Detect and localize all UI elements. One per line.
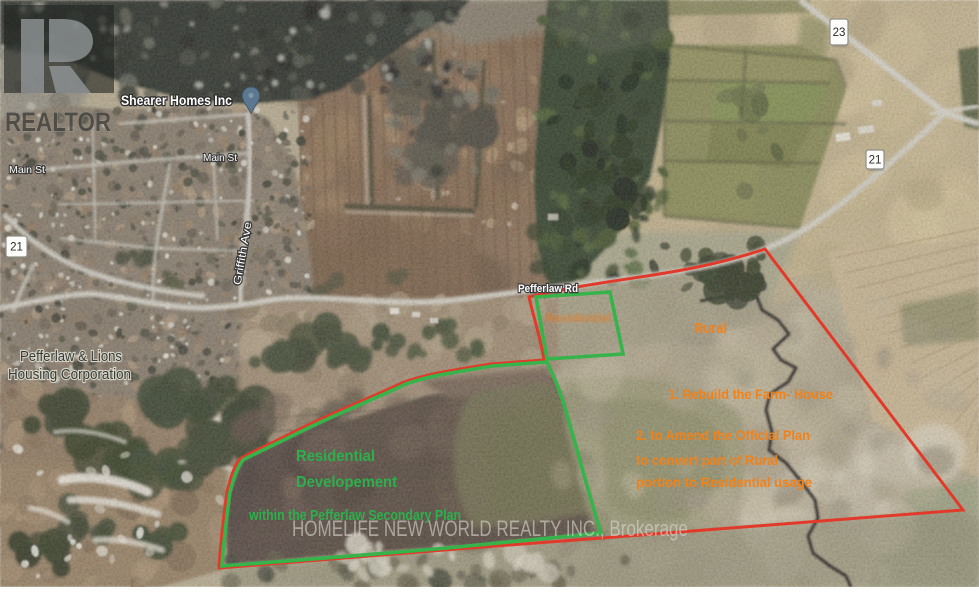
svg-text:21: 21 — [10, 242, 23, 254]
svg-text:23: 23 — [833, 27, 846, 39]
svg-text:Residential: Residential — [296, 448, 375, 465]
svg-text:Pefferlaw & Lions: Pefferlaw & Lions — [20, 349, 122, 365]
svg-text:Housing Corporation: Housing Corporation — [8, 367, 131, 383]
svg-text:1. Rebuild the Farm- House: 1. Rebuild the Farm- House — [668, 387, 833, 402]
svg-text:HOMELIFE NEW WORLD REALTY INC.: HOMELIFE NEW WORLD REALTY INC., Brokerag… — [292, 516, 688, 541]
svg-text:Shearer Homes Inc: Shearer Homes Inc — [121, 93, 232, 108]
svg-text:Rural: Rural — [694, 321, 727, 337]
svg-text:REALTOR: REALTOR — [5, 107, 111, 137]
svg-text:Developement: Developement — [296, 474, 398, 491]
svg-text:Pefferlaw Rd: Pefferlaw Rd — [518, 283, 578, 295]
svg-text:2. to Amend the Official Plan: 2. to Amend the Official Plan — [636, 428, 810, 443]
svg-text:portion to Residential usage: portion to Residential usage — [636, 475, 812, 490]
svg-text:Residential: Residential — [545, 313, 611, 325]
svg-text:to convert part of Rural: to convert part of Rural — [636, 453, 778, 468]
svg-text:21: 21 — [869, 155, 882, 167]
svg-text:Main St: Main St — [203, 152, 237, 164]
svg-text:Main St: Main St — [9, 164, 45, 176]
